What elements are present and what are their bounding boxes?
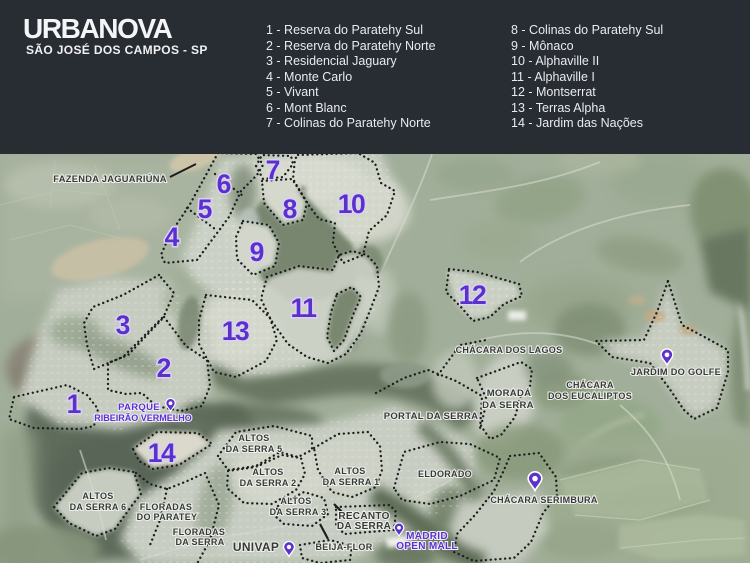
svg-text:DA SERRA 5: DA SERRA 5 [226, 444, 283, 454]
svg-text:5: 5 [198, 194, 213, 224]
svg-text:ALTOS: ALTOS [334, 466, 365, 476]
svg-text:ALTOS: ALTOS [252, 467, 283, 477]
svg-text:CHÁCARA: CHÁCARA [566, 380, 614, 390]
svg-text:DA SERRA: DA SERRA [175, 537, 224, 547]
svg-text:DO PARATEY: DO PARATEY [137, 512, 198, 522]
svg-text:ALTOS: ALTOS [238, 433, 269, 443]
svg-text:DA SERRA 2: DA SERRA 2 [240, 478, 297, 488]
svg-text:CHÁCARA SERIMBURA: CHÁCARA SERIMBURA [490, 495, 597, 505]
svg-text:DA SERRA 6: DA SERRA 6 [70, 502, 127, 512]
svg-text:FLORADAS: FLORADAS [173, 527, 225, 537]
svg-text:OPEN MALL: OPEN MALL [396, 541, 458, 552]
svg-text:DA SERRA: DA SERRA [337, 521, 391, 532]
svg-text:RIBEIRÃO VERMELHO: RIBEIRÃO VERMELHO [94, 413, 192, 423]
svg-text:DA SERRA: DA SERRA [482, 400, 534, 411]
svg-text:FAZENDA JAGUARIÚNA: FAZENDA JAGUARIÚNA [53, 173, 167, 184]
svg-text:CHÁCARA DOS LAGOS: CHÁCARA DOS LAGOS [456, 345, 563, 355]
svg-text:10: 10 [338, 189, 365, 219]
svg-text:DOS EUCALIPTOS: DOS EUCALIPTOS [548, 391, 632, 401]
svg-text:BEIJA-FLOR: BEIJA-FLOR [316, 542, 373, 552]
svg-text:DA SERRA 1: DA SERRA 1 [323, 477, 380, 487]
svg-text:11: 11 [290, 293, 316, 323]
svg-text:14: 14 [148, 438, 176, 468]
svg-text:ALTOS: ALTOS [82, 491, 113, 501]
svg-text:9: 9 [250, 237, 265, 267]
svg-text:DA SERRA 3: DA SERRA 3 [270, 507, 327, 517]
svg-text:ALTOS: ALTOS [280, 496, 311, 506]
svg-text:ELDORADO: ELDORADO [418, 469, 472, 479]
svg-text:12: 12 [459, 280, 486, 310]
svg-text:13: 13 [222, 316, 249, 346]
svg-text:6: 6 [217, 169, 232, 199]
svg-text:MORADÁ: MORADÁ [487, 388, 532, 399]
svg-text:8: 8 [283, 194, 298, 224]
svg-text:3: 3 [116, 310, 131, 340]
svg-text:1: 1 [67, 389, 82, 419]
svg-text:JARDIM DO GOLFE: JARDIM DO GOLFE [631, 367, 721, 377]
svg-text:4: 4 [165, 222, 180, 252]
svg-text:UNIVAP: UNIVAP [233, 540, 279, 554]
svg-text:FLORADAS: FLORADAS [140, 502, 192, 512]
svg-text:2: 2 [157, 353, 172, 383]
svg-text:PORTAL DA SERRA: PORTAL DA SERRA [384, 411, 479, 422]
svg-text:PARQUE: PARQUE [118, 402, 160, 413]
svg-text:7: 7 [266, 155, 281, 185]
